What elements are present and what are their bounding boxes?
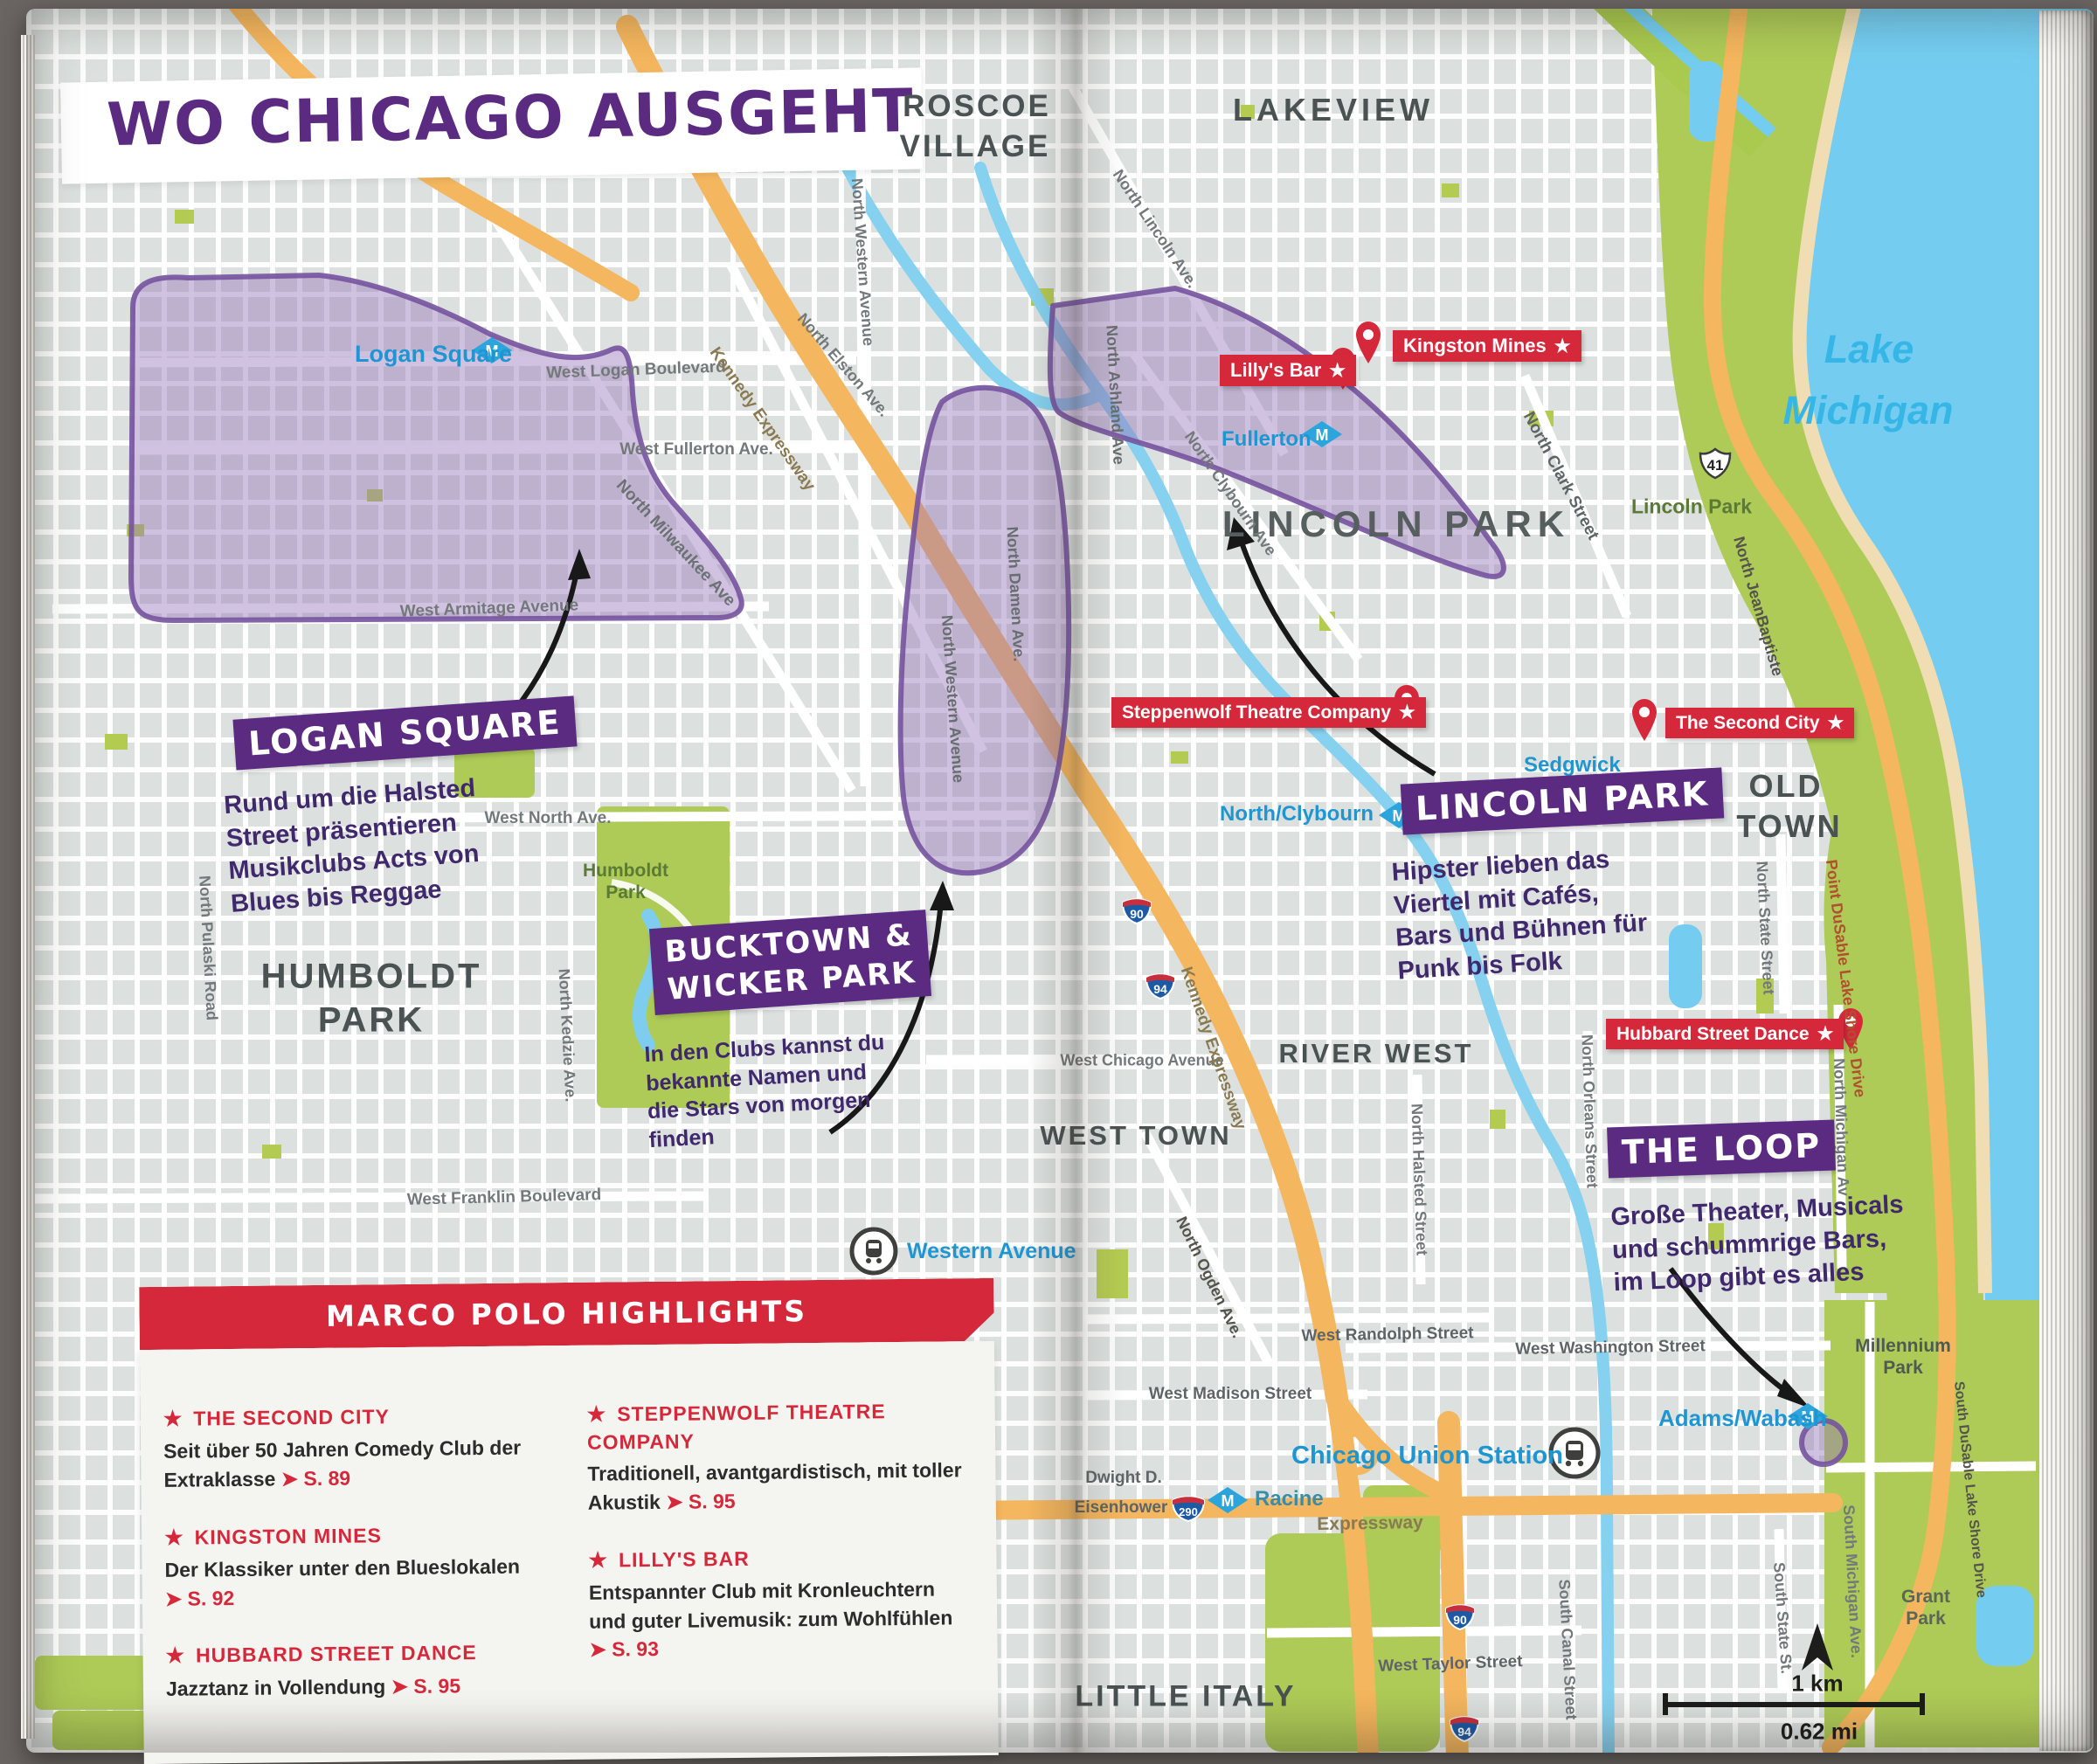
star-icon: ★: [588, 1548, 608, 1572]
book-photo: { "icons": {"star":"★","metro_m":"M","pa…: [0, 0, 2097, 1764]
poi-hubbard-street-dance: Hubbard Street Dance★: [1606, 1019, 1844, 1049]
neighborhood-old-town-line1: OLD: [1749, 768, 1824, 805]
park-label-grant-line2: Park: [1906, 1608, 1946, 1629]
shield-number: 90: [1453, 1613, 1467, 1627]
metro-adams-wabash: Adams/Wabash: [1658, 1405, 1827, 1432]
highlights-col-right: ★STEPPENWOLF THEATRE COMPANY Traditionel…: [587, 1397, 967, 1741]
park-label-grant-line1: Grant: [1901, 1587, 1950, 1608]
highlight-name: HUBBARD STREET DANCE: [196, 1642, 477, 1667]
highlight-page-ref: ➤ S. 95: [391, 1674, 461, 1698]
svg-text:M: M: [1316, 426, 1329, 444]
highlight-entry: ★LILLY'S BAR Entspannter Club mit Kronle…: [588, 1543, 965, 1664]
star-icon: ★: [1329, 361, 1346, 381]
shield-number: 41: [1707, 457, 1724, 474]
neighborhood-little-italy: LITTLE ITALY: [1075, 1680, 1296, 1714]
district-desc-lincoln-park: Hipster lieben das Viertel mit Cafés, Ba…: [1391, 841, 1651, 988]
star-icon: ★: [165, 1644, 185, 1668]
highlight-name: LILLY'S BAR: [619, 1547, 750, 1572]
metro-fullerton: Fullerton: [1222, 427, 1311, 452]
highlight-name: STEPPENWOLF THEATRE COMPANY: [587, 1400, 886, 1454]
metro-north-clybourn: North/Clybourn: [1220, 802, 1374, 827]
star-icon: ★: [1554, 336, 1571, 356]
highlight-body: Entspannter Club mit Kronleuchtern und g…: [589, 1578, 953, 1633]
street-label: West Fullerton Ave.: [619, 440, 773, 460]
highlight-page-ref: ➤ S. 92: [165, 1587, 235, 1610]
poi-name: Kingston Mines: [1403, 335, 1547, 356]
poi-name: Hubbard Street Dance: [1616, 1024, 1810, 1044]
park-patch: [35, 1656, 149, 1710]
highlight-body: Jazztanz in Vollendung: [166, 1675, 386, 1700]
highlight-body: Traditionell, avantgardistisch, mit toll…: [587, 1459, 961, 1514]
street-label: Expressway: [1317, 1512, 1423, 1535]
street-label: West Randolph Street: [1301, 1324, 1473, 1345]
park-label-millennium-line1: Millennium: [1855, 1336, 1951, 1357]
poi-name: The Second City: [1676, 713, 1820, 733]
neighborhood-west-town: WEST TOWN: [1040, 1120, 1231, 1152]
street-label: West Chicago Avenue: [1060, 1052, 1223, 1070]
shield-number: 94: [1457, 1725, 1471, 1739]
poi-steppenwolf: Steppenwolf Theatre Company★: [1111, 697, 1426, 728]
star-icon: ★: [1828, 713, 1844, 733]
star-icon: ★: [163, 1408, 183, 1431]
shield-number: 90: [1130, 907, 1144, 921]
neighborhood-river-west: RIVER WEST: [1279, 1038, 1474, 1069]
lake-michigan-label-line2: Michigan: [1782, 388, 1953, 433]
park-label-humboldt-line1: Humboldt: [583, 861, 668, 882]
grant-pond: [1976, 1586, 2034, 1666]
rail-western-avenue: Western Avenue: [907, 1239, 1076, 1264]
neighborhood-roscoe-village-line1: ROSCOE: [903, 89, 1051, 124]
highlight-entry: ★STEPPENWOLF THEATRE COMPANY Traditionel…: [587, 1397, 965, 1517]
poi-name: Steppenwolf Theatre Company: [1122, 702, 1391, 723]
neighborhood-roscoe-village-line2: VILLAGE: [900, 129, 1051, 164]
highlights-col-left: ★THE SECOND CITY Seit über 50 Jahren Com…: [163, 1401, 543, 1746]
neighborhood-humboldt-park-line2: PARK: [318, 1001, 425, 1041]
page-title: WO CHICAGO AUSGEHT: [106, 77, 915, 160]
highlights-title: MARCO POLO HIGHLIGHTS: [139, 1292, 993, 1335]
shield-number: 290: [1179, 1505, 1198, 1518]
rail-union-station: Chicago Union Station: [1291, 1442, 1563, 1470]
street-label: Dwight D.: [1085, 1469, 1162, 1488]
highlight-page-ref: ➤ S. 89: [281, 1467, 351, 1491]
district-desc-logan-square: Rund um die Halsted Street präsentieren …: [223, 772, 483, 922]
highlight-name: KINGSTON MINES: [195, 1524, 382, 1548]
star-icon: ★: [1817, 1024, 1834, 1044]
scale-km: 1 km: [1791, 1671, 1843, 1698]
neighborhood-humboldt-park-line1: HUMBOLDT: [261, 958, 482, 997]
star-icon: ★: [1399, 702, 1415, 723]
highlight-body: Der Klassiker unter den Blueslokalen: [164, 1555, 520, 1581]
metro-racine: Racine: [1255, 1487, 1324, 1512]
star-icon: ★: [587, 1403, 607, 1427]
neighborhood-lincoln-park: LINCOLN PARK: [1222, 503, 1570, 545]
street-label: West North Ave.: [485, 809, 612, 828]
highlight-entry: ★KINGSTON MINES Der Klassiker unter den …: [164, 1520, 542, 1613]
highlights-box: MARCO POLO HIGHLIGHTS ★THE SECOND CITY S…: [139, 1278, 999, 1764]
poi-second-city: The Second City★: [1665, 708, 1854, 738]
highlight-page-ref: ➤ S. 95: [666, 1490, 736, 1513]
street-label: West Washington Street: [1515, 1337, 1706, 1359]
scale-mi: 0.62 mi: [1781, 1719, 1858, 1746]
street-label: West Madison Street: [1149, 1385, 1312, 1404]
bucktown-wicker-area: [901, 388, 1069, 873]
highlight-page-ref: ➤ S. 93: [589, 1637, 659, 1661]
highlight-entry: ★THE SECOND CITY Seit über 50 Jahren Com…: [163, 1401, 541, 1494]
shield-number: 94: [1153, 982, 1167, 996]
highlights-body: ★THE SECOND CITY Seit über 50 Jahren Com…: [140, 1341, 999, 1764]
star-icon: ★: [164, 1525, 184, 1549]
lake-michigan-label-line1: Lake: [1824, 327, 1914, 372]
neighborhood-lakeview: LAKEVIEW: [1233, 92, 1434, 128]
neighborhood-old-town-line2: TOWN: [1736, 808, 1842, 845]
pond: [1669, 924, 1702, 1008]
district-label-the-loop: THE LOOP: [1607, 1119, 1836, 1178]
street-label: Eisenhower: [1075, 1498, 1168, 1518]
highlight-name: THE SECOND CITY: [193, 1405, 390, 1429]
svg-text:M: M: [1222, 1492, 1235, 1510]
district-desc-the-loop: Große Theater, Musicals und schummrige B…: [1610, 1189, 1907, 1301]
highlights-header: MARCO POLO HIGHLIGHTS: [139, 1278, 994, 1350]
metro-logan-square: Logan Square: [355, 341, 512, 368]
park-label-millennium-line2: Park: [1883, 1358, 1923, 1379]
poi-kingston-mines: Kingston Mines★: [1393, 330, 1581, 362]
page-edge-stack-left: [21, 35, 35, 1739]
highlight-entry: ★HUBBARD STREET DANCE Jazztanz in Vollen…: [165, 1639, 543, 1704]
district-desc-bucktown: In den Clubs kannst du bekannte Namen un…: [644, 1028, 889, 1154]
poi-lillys-bar: Lilly's Bar★: [1220, 355, 1356, 386]
poi-name: Lilly's Bar: [1230, 359, 1321, 381]
park-label-lincoln: Lincoln Park: [1631, 495, 1752, 519]
page-edge-stack-right: [2039, 10, 2094, 1751]
park-label-humboldt-line2: Park: [606, 882, 646, 903]
